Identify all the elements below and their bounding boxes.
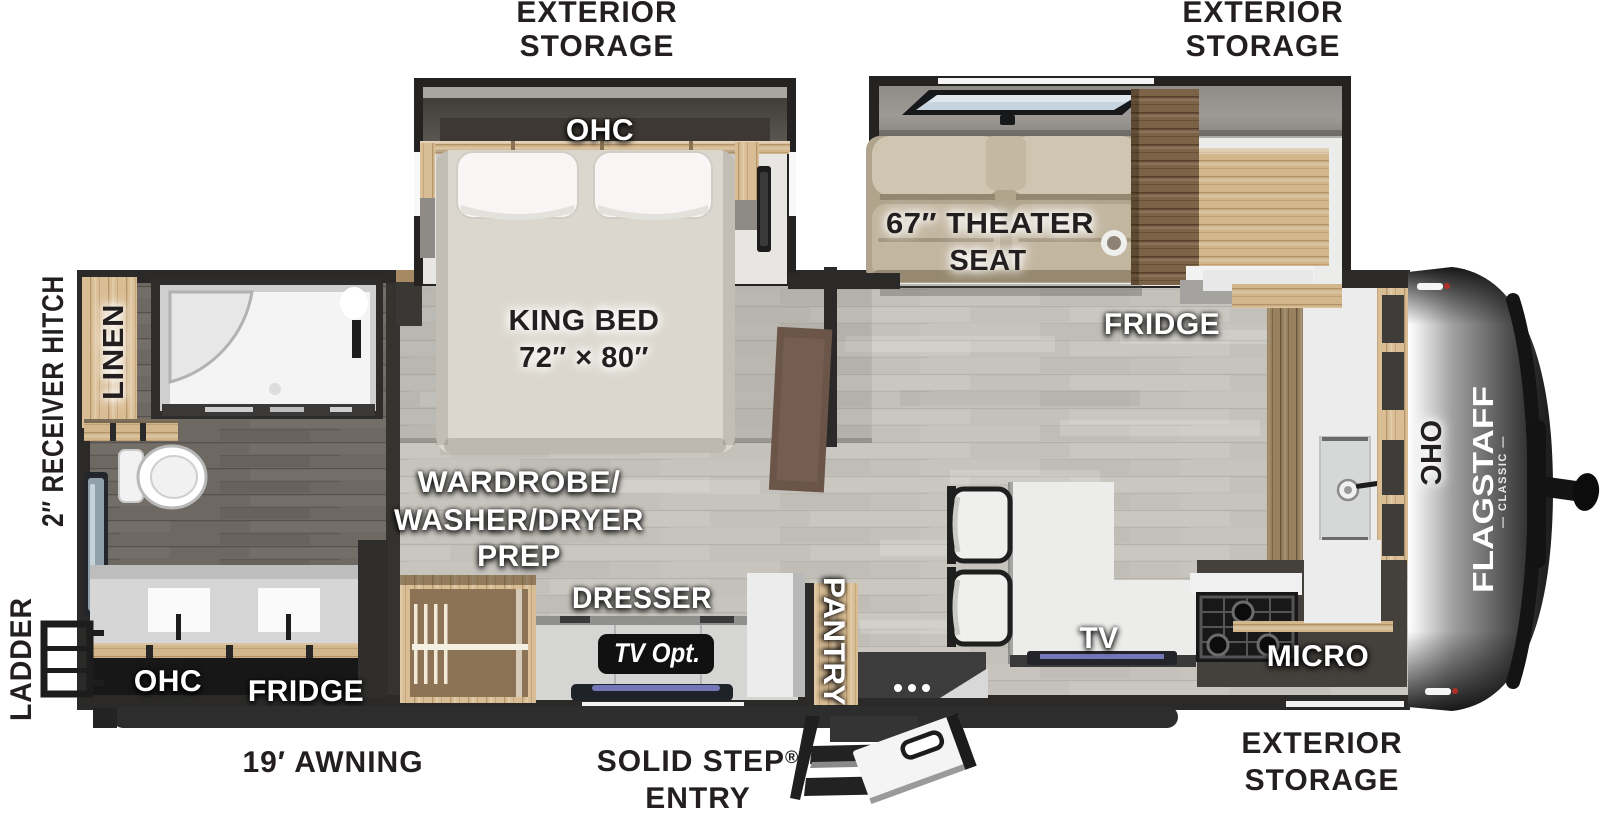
- svg-text:ENTRY: ENTRY: [645, 782, 751, 815]
- svg-text:— CLASSIC —: — CLASSIC —: [1497, 435, 1509, 528]
- svg-text:KING BED: KING BED: [509, 305, 660, 337]
- svg-text:STORAGE: STORAGE: [1186, 30, 1341, 63]
- svg-text:LADDER: LADDER: [5, 597, 38, 721]
- svg-text:2″ RECEIVER HITCH: 2″ RECEIVER HITCH: [37, 275, 70, 527]
- svg-text:MICRO: MICRO: [1267, 640, 1370, 673]
- svg-text:FRIDGE: FRIDGE: [248, 675, 364, 708]
- svg-text:67″ THEATER: 67″ THEATER: [886, 208, 1094, 240]
- svg-text:SEAT: SEAT: [949, 245, 1026, 277]
- svg-text:TV Opt.: TV Opt.: [614, 638, 700, 668]
- svg-text:OHC: OHC: [566, 114, 634, 147]
- svg-text:EXTERIOR: EXTERIOR: [516, 0, 677, 29]
- svg-text:OHC: OHC: [134, 665, 202, 698]
- svg-text:PREP: PREP: [477, 540, 561, 573]
- svg-text:STORAGE: STORAGE: [1245, 764, 1400, 797]
- svg-text:EXTERIOR: EXTERIOR: [1182, 0, 1343, 29]
- svg-text:72″ × 80″: 72″ × 80″: [519, 342, 649, 374]
- svg-text:PANTRY: PANTRY: [817, 577, 850, 706]
- svg-text:FLAGSTAFF: FLAGSTAFF: [1468, 386, 1500, 593]
- svg-text:WASHER/DRYER: WASHER/DRYER: [394, 504, 644, 537]
- svg-text:19′ AWNING: 19′ AWNING: [242, 746, 423, 779]
- svg-text:SOLID STEP®: SOLID STEP®: [597, 745, 800, 778]
- svg-text:LINEN: LINEN: [98, 304, 130, 400]
- svg-text:STORAGE: STORAGE: [520, 30, 675, 63]
- svg-text:EXTERIOR: EXTERIOR: [1241, 727, 1402, 760]
- svg-text:DRESSER: DRESSER: [572, 582, 712, 615]
- svg-text:WARDROBE/: WARDROBE/: [418, 466, 621, 499]
- svg-text:TV: TV: [1079, 622, 1118, 655]
- svg-text:OHC: OHC: [1414, 420, 1446, 486]
- svg-text:FRIDGE: FRIDGE: [1104, 308, 1220, 341]
